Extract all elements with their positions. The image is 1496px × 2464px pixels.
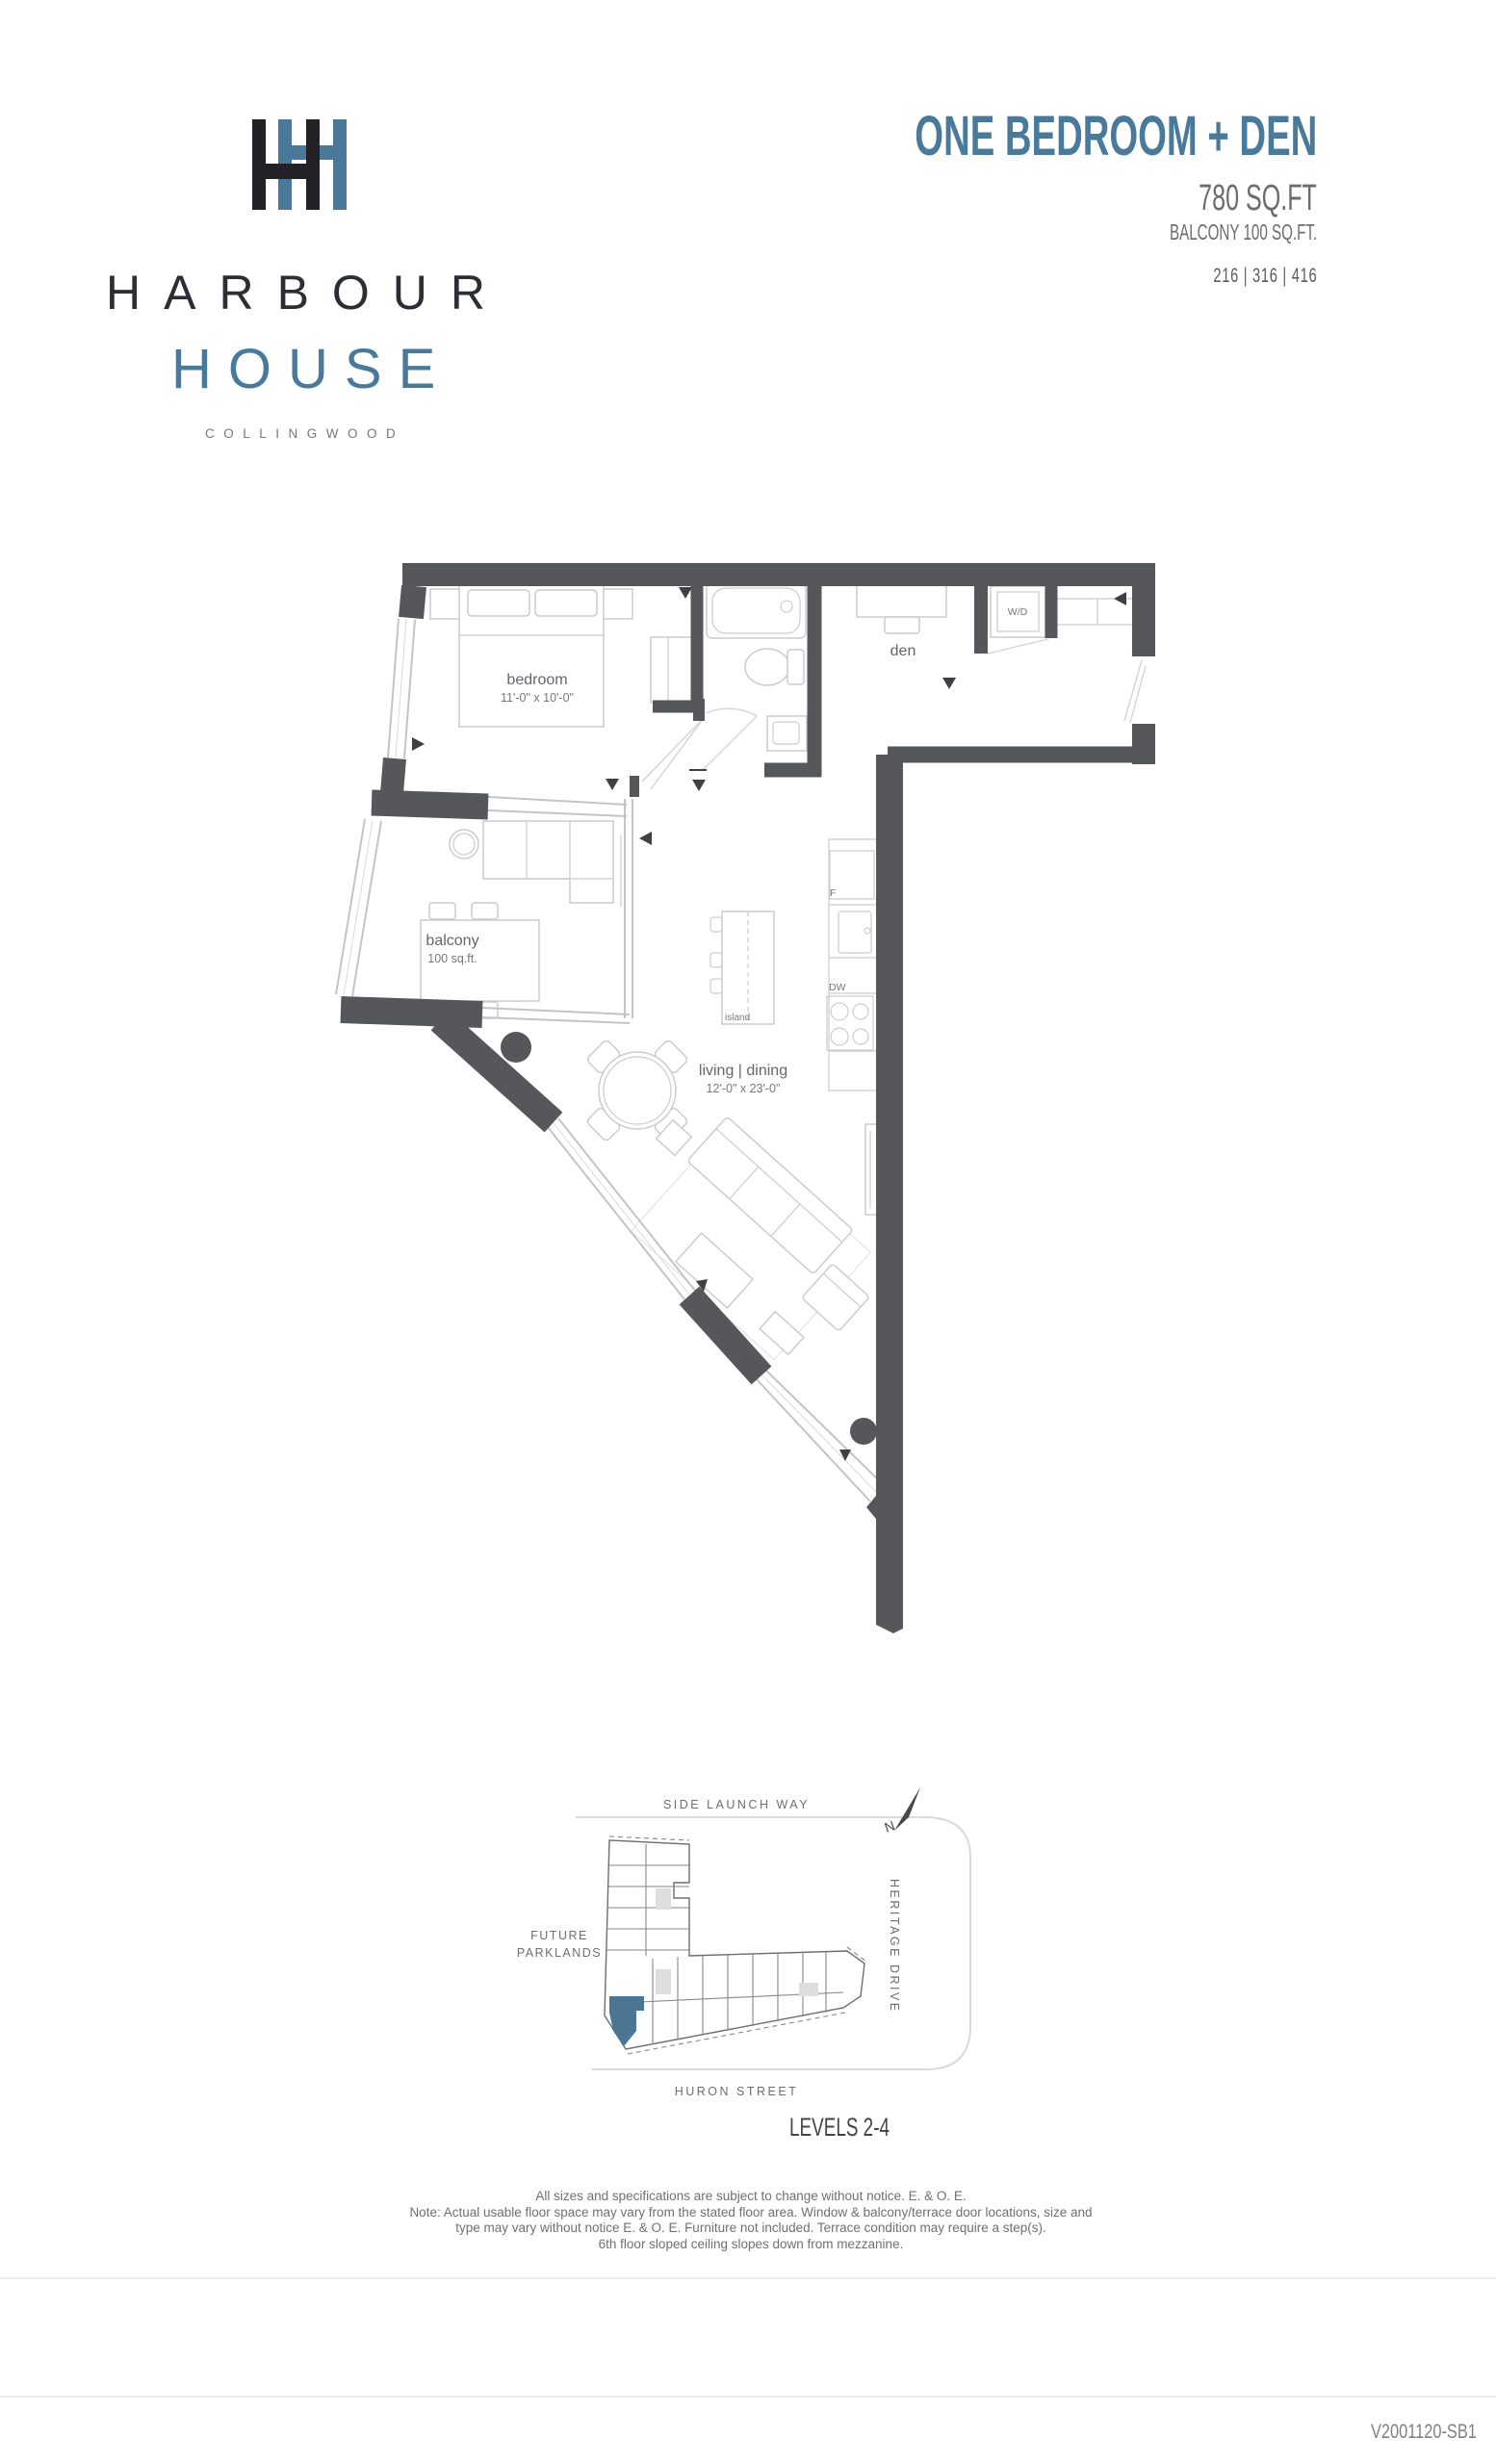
parklands-label-2: PARKLANDS <box>517 1946 602 1960</box>
street-top-label: SIDE LAUNCH WAY <box>663 1798 810 1811</box>
den-label: den <box>890 643 916 659</box>
floorplan-sheet: { "logo": { "word1": "HARBOUR", "word2":… <box>0 0 1496 2464</box>
living-dining-label: living | dining <box>699 1063 787 1079</box>
parklands-label-1: FUTURE <box>530 1929 588 1942</box>
building-outline <box>605 1840 864 2049</box>
divider-line <box>0 2277 1496 2279</box>
levels-label: LEVELS 2-4 <box>789 2113 890 2142</box>
washer-dryer-label: W/D <box>1008 606 1028 618</box>
armchair <box>802 1264 870 1331</box>
disclaimer-line: type may vary without notice E. & O. E. … <box>0 2220 1496 2237</box>
structural-column <box>850 1418 877 1445</box>
kitchen <box>710 839 876 1091</box>
outdoor-sectional <box>483 821 613 903</box>
version-code: V2001120-SB1 <box>1371 2421 1477 2444</box>
disclaimer-text: All sizes and specifications are subject… <box>0 2189 1496 2252</box>
bedroom-label: bedroom <box>506 672 567 688</box>
living-dining-dims: 12'-0" x 23'-0" <box>707 1082 781 1095</box>
street-bottom-label: HURON STREET <box>675 2085 799 2098</box>
disclaimer-line: Note: Actual usable floor space may vary… <box>0 2205 1496 2221</box>
north-label: N <box>883 1817 897 1835</box>
kitchen-sink <box>838 911 871 953</box>
dishwasher-label: DW <box>829 982 846 993</box>
toilet <box>745 649 789 685</box>
site-plan: N SIDE LAUNCH WAY HERITAGE DRIVE HURON S… <box>517 1787 970 2142</box>
structural-column <box>501 1032 531 1063</box>
floor-plan-canvas: bedroom 11'-0" x 10'-0" den W/D balcony … <box>0 0 1496 2464</box>
disclaimer-line: All sizes and specifications are subject… <box>0 2189 1496 2205</box>
divider-line <box>0 2396 1496 2398</box>
north-arrow-icon: N <box>883 1787 920 1835</box>
walls <box>341 575 1155 1633</box>
street-right-label: HERITAGE DRIVE <box>888 1879 901 2014</box>
den-furniture <box>857 583 1140 637</box>
living-furniture <box>632 1116 884 1360</box>
island-label: island <box>725 1013 750 1023</box>
balcony-label: balcony <box>426 933 478 949</box>
bedroom-dims: 11'-0" x 10'-0" <box>501 691 574 705</box>
balcony-area-label: 100 sq.ft. <box>427 952 477 965</box>
fridge <box>830 851 874 899</box>
fridge-label: F <box>830 887 836 899</box>
floor-plan: bedroom 11'-0" x 10'-0" den W/D balcony … <box>336 575 1155 1633</box>
highlighted-unit <box>609 1996 644 2046</box>
bathroom-fixtures <box>707 583 807 751</box>
disclaimer-line: 6th floor sloped ceiling slopes down fro… <box>0 2237 1496 2253</box>
balcony-furniture <box>421 821 613 1018</box>
den-desk <box>857 583 946 617</box>
coffee-table <box>676 1233 753 1308</box>
